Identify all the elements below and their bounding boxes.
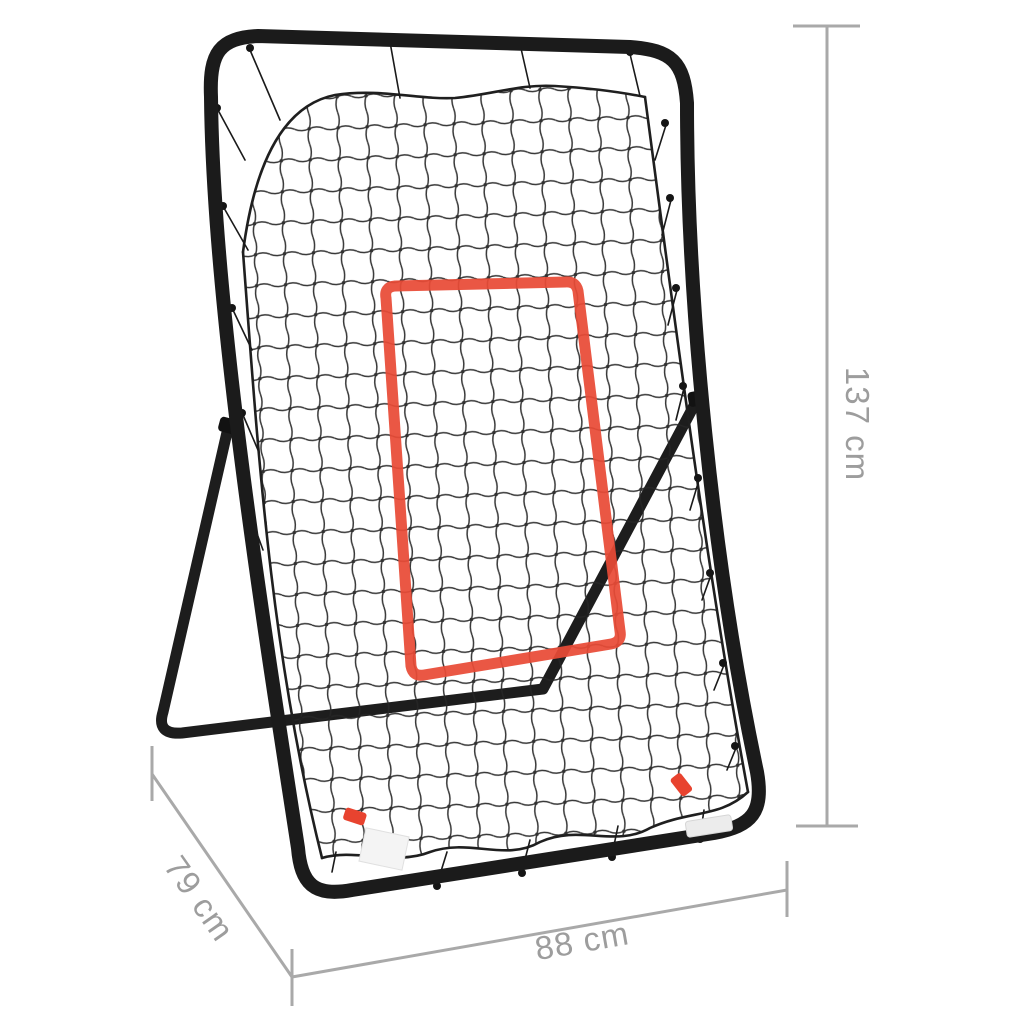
depth-dimension: 79 cm (152, 746, 292, 1006)
width-dimension-label: 88 cm (532, 914, 632, 967)
net-mesh (243, 86, 748, 858)
width-dimension: 88 cm (292, 861, 787, 977)
depth-dimension-label: 79 cm (157, 849, 242, 948)
rebounder-net (213, 36, 748, 890)
rebounder-dimension-drawing: 137 cm 79 cm 88 cm (0, 0, 1024, 1024)
height-dimension: 137 cm (793, 26, 876, 826)
height-dimension-label: 137 cm (839, 367, 876, 481)
product-dimension-image: 137 cm 79 cm 88 cm (0, 0, 1024, 1024)
